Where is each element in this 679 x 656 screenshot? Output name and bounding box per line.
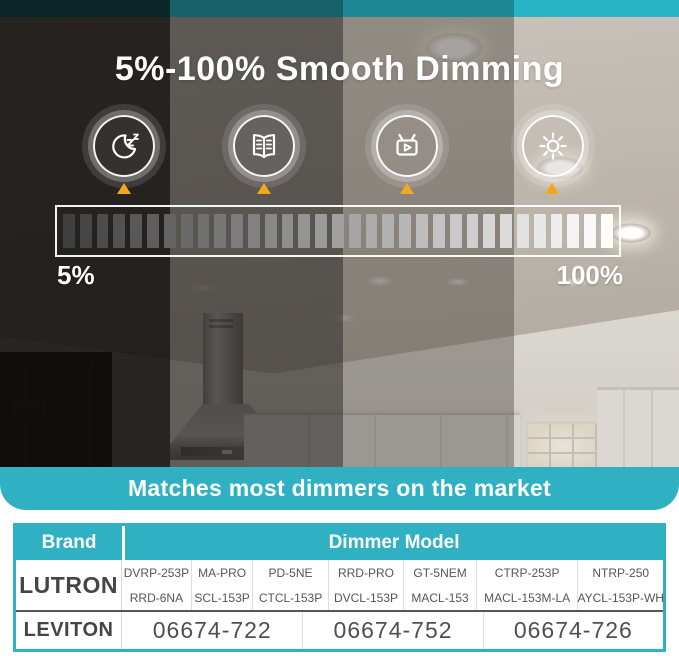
dimmer-segment (517, 214, 529, 248)
dimmer-segment (551, 214, 563, 248)
dimmer-segment (567, 214, 579, 248)
dimmer-segment (282, 214, 294, 248)
lutron-models: DVRP-253PMA-PROPD-5NERRD-PROGT-5NEMCTRP-… (122, 560, 663, 610)
dimmer-segment (214, 214, 226, 248)
max-dim-label: 100% (557, 260, 624, 291)
lutron-model-cell: RRD-6NA (122, 585, 191, 610)
open-book-icon (246, 128, 282, 164)
strip-segment (514, 0, 679, 17)
scene-tv-watching (376, 115, 438, 177)
dimmer-segment (97, 214, 109, 248)
teal-strip (0, 0, 679, 17)
leviton-brand-cell: LEVITON (16, 612, 122, 649)
dimmer-segment (80, 214, 92, 248)
table-header-row: Brand Dimmer Model (16, 526, 663, 560)
dimmer-segment (315, 214, 327, 248)
hero-section: 5%-100% Smooth Dimming (0, 0, 679, 467)
lutron-model-cell: MACL-153M-LA (476, 585, 578, 610)
leviton-row: LEVITON 06674-72206674-75206674-726 (16, 610, 663, 649)
model-header-cell: Dimmer Model (122, 526, 663, 560)
pointer-triangle (400, 183, 414, 194)
dimmer-segment (113, 214, 125, 248)
brand-header-cell: Brand (16, 526, 122, 560)
scene-full-brightness (522, 115, 584, 177)
lutron-brand-cell: LUTRON (16, 560, 122, 610)
dimmer-segment (500, 214, 512, 248)
strip-segment (0, 0, 170, 17)
dimmer-segment (349, 214, 361, 248)
lutron-row: LUTRON DVRP-253PMA-PROPD-5NERRD-PROGT-5N… (16, 560, 663, 610)
leviton-model-cell: 06674-722 (122, 612, 302, 649)
lutron-model-cell: CTCL-153P (252, 585, 327, 610)
dimmer-segment (298, 214, 310, 248)
dimmer-bar-segments (63, 214, 613, 248)
lutron-model-cell: SCL-153P (191, 585, 253, 610)
lutron-model-cell: RRD-PRO (328, 560, 404, 585)
compatibility-banner: Matches most dimmers on the market (0, 467, 679, 510)
lutron-model-cell: AYCL-153P-WH (577, 585, 662, 610)
strip-segment (170, 0, 343, 17)
pointer-triangle (545, 183, 559, 194)
dimmer-segment (467, 214, 479, 248)
dimmer-segment (584, 214, 596, 248)
dimmer-segment (231, 214, 243, 248)
pointer-triangle (117, 183, 131, 194)
dimmer-segment (332, 214, 344, 248)
lutron-model-cell: CTRP-253P (476, 560, 578, 585)
dimmer-segment (63, 214, 75, 248)
dimmer-segment (416, 214, 428, 248)
product-infographic: 5%-100% Smooth Dimming (0, 0, 679, 656)
lutron-model-cell: GT-5NEM (403, 560, 475, 585)
tv-play-icon (389, 128, 425, 164)
leviton-model-cell: 06674-752 (302, 612, 482, 649)
lutron-model-cell: DVRP-253P (122, 560, 191, 585)
lutron-model-cell: DVCL-153P (328, 585, 404, 610)
banner-text: Matches most dimmers on the market (128, 475, 551, 502)
dimmer-segment (147, 214, 159, 248)
dimmer-segment (433, 214, 445, 248)
leviton-model-cell: 06674-726 (483, 612, 663, 649)
dimmer-segment (483, 214, 495, 248)
min-dim-label: 5% (57, 260, 95, 291)
lutron-model-cell: PD-5NE (252, 560, 327, 585)
lutron-model-cell: MACL-153 (403, 585, 475, 610)
lutron-model-cell: NTRP-250 (577, 560, 662, 585)
dimmer-segment (181, 214, 193, 248)
dimmer-segment (534, 214, 546, 248)
recessed-light (611, 224, 651, 243)
dimmer-segment (382, 214, 394, 248)
dimmer-segment (399, 214, 411, 248)
scene-night-sleep (93, 115, 155, 177)
dimmer-bar (55, 205, 621, 257)
scene-reading (233, 115, 295, 177)
pointer-triangle (257, 183, 271, 194)
dimmer-segment (265, 214, 277, 248)
dimmer-compatibility-table: Brand Dimmer Model LUTRON DVRP-253PMA-PR… (13, 523, 666, 652)
dimmer-segment (450, 214, 462, 248)
lutron-model-cell: MA-PRO (191, 560, 253, 585)
sun-icon (535, 128, 571, 164)
strip-segment (343, 0, 514, 17)
dimmer-segment (366, 214, 378, 248)
dimmer-segment (130, 214, 142, 248)
dimmer-segment (248, 214, 260, 248)
leviton-models: 06674-72206674-75206674-726 (122, 612, 663, 649)
moon-zz-icon (106, 128, 142, 164)
dimmer-segment (164, 214, 176, 248)
dimmer-segment (198, 214, 210, 248)
hero-title: 5%-100% Smooth Dimming (0, 50, 679, 89)
